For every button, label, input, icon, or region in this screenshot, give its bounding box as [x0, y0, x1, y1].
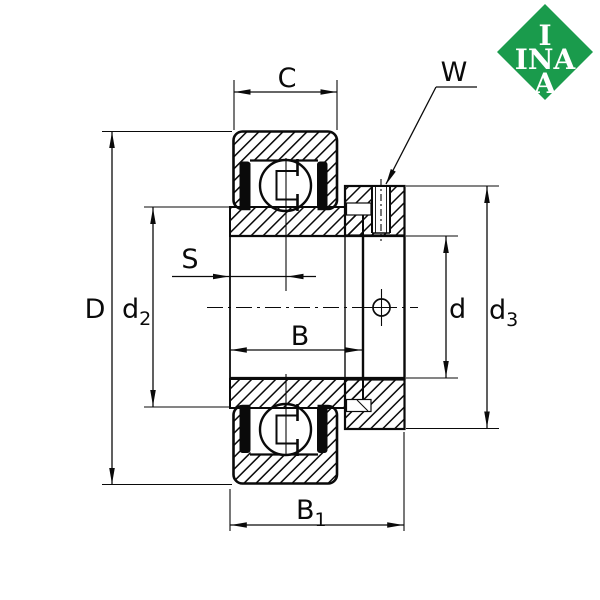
page: C W D d2 S B	[0, 0, 600, 600]
bearing-bottom-half-section	[230, 374, 405, 484]
dimension-S: S	[172, 244, 316, 279]
dimension-B: B	[230, 321, 362, 353]
dimension-label-B1: B1	[296, 495, 327, 531]
seal-left-bottom	[240, 407, 250, 453]
dimension-label-D: D	[85, 294, 106, 325]
dimension-label-W: W	[441, 57, 468, 88]
dimension-label-d: d	[449, 294, 466, 325]
dimension-label-B: B	[291, 321, 310, 352]
svg-text:A: A	[533, 67, 557, 100]
dimension-label-C: C	[278, 63, 297, 94]
dimension-label-S: S	[181, 244, 198, 275]
bearing-top-half-section	[230, 132, 405, 292]
bearing-technical-drawing: C W D d2 S B	[0, 0, 600, 600]
seal-right-top	[318, 162, 328, 208]
seal-left-top	[240, 162, 250, 208]
inner-ring-top-section	[230, 207, 363, 236]
setscrew-hole-section	[372, 179, 390, 241]
ina-logo: I INA A	[497, 4, 593, 100]
eccentric-gap-top	[347, 203, 372, 215]
dimension-W-leader: W	[386, 57, 477, 185]
dimension-label-d2: d2	[122, 294, 151, 330]
dimension-C: C	[234, 63, 337, 130]
seal-right-bottom	[318, 407, 328, 453]
setscrew-hole-front-view	[367, 289, 396, 326]
dimension-label-d3: d3	[489, 295, 518, 331]
inner-ring-bottom-section	[230, 379, 363, 408]
